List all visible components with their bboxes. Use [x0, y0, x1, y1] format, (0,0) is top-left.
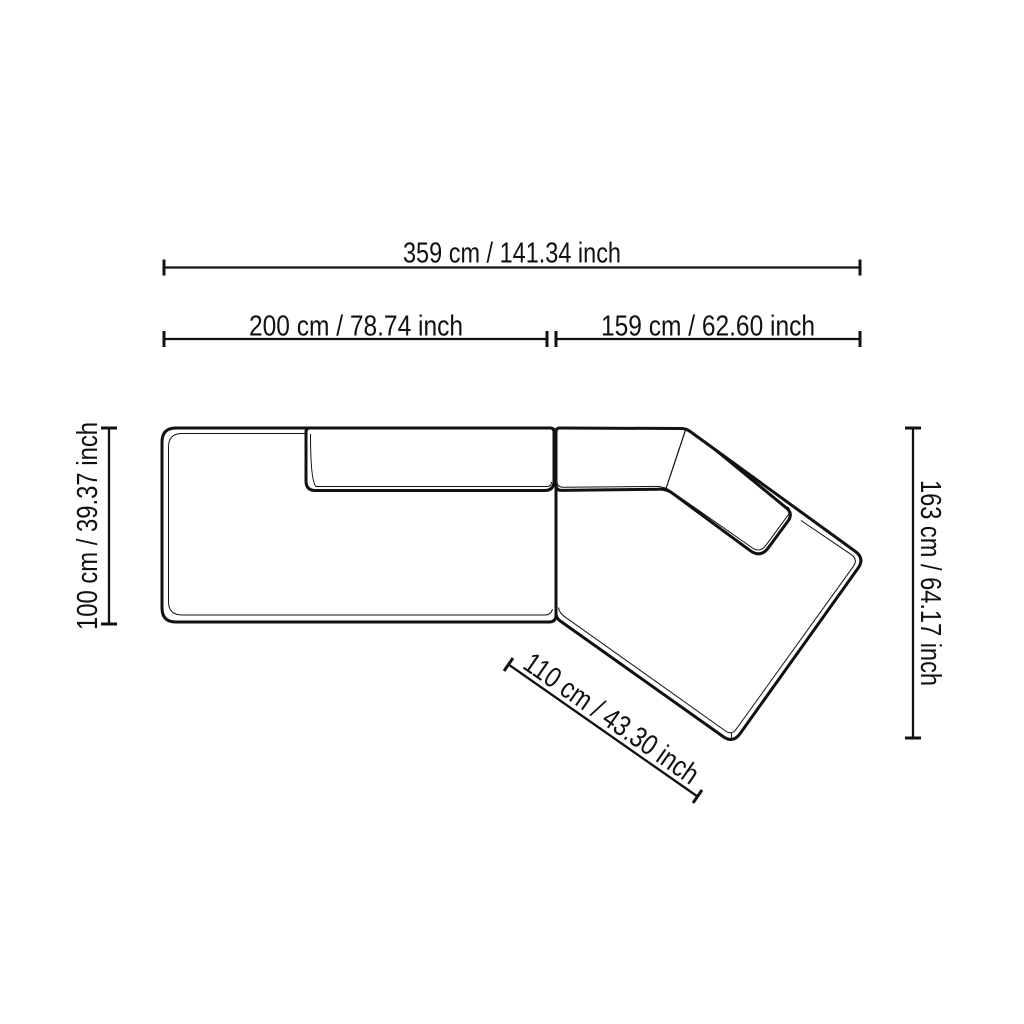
svg-text:163 cm / 64.17 inch: 163 cm / 64.17 inch	[914, 480, 946, 686]
svg-text:200 cm / 78.74 inch: 200 cm / 78.74 inch	[249, 311, 463, 343]
svg-text:100 cm / 39.37 inch: 100 cm / 39.37 inch	[72, 422, 104, 630]
svg-text:159 cm / 62.60 inch: 159 cm / 62.60 inch	[601, 311, 815, 343]
svg-text:359 cm / 141.34 inch: 359 cm / 141.34 inch	[403, 238, 621, 270]
